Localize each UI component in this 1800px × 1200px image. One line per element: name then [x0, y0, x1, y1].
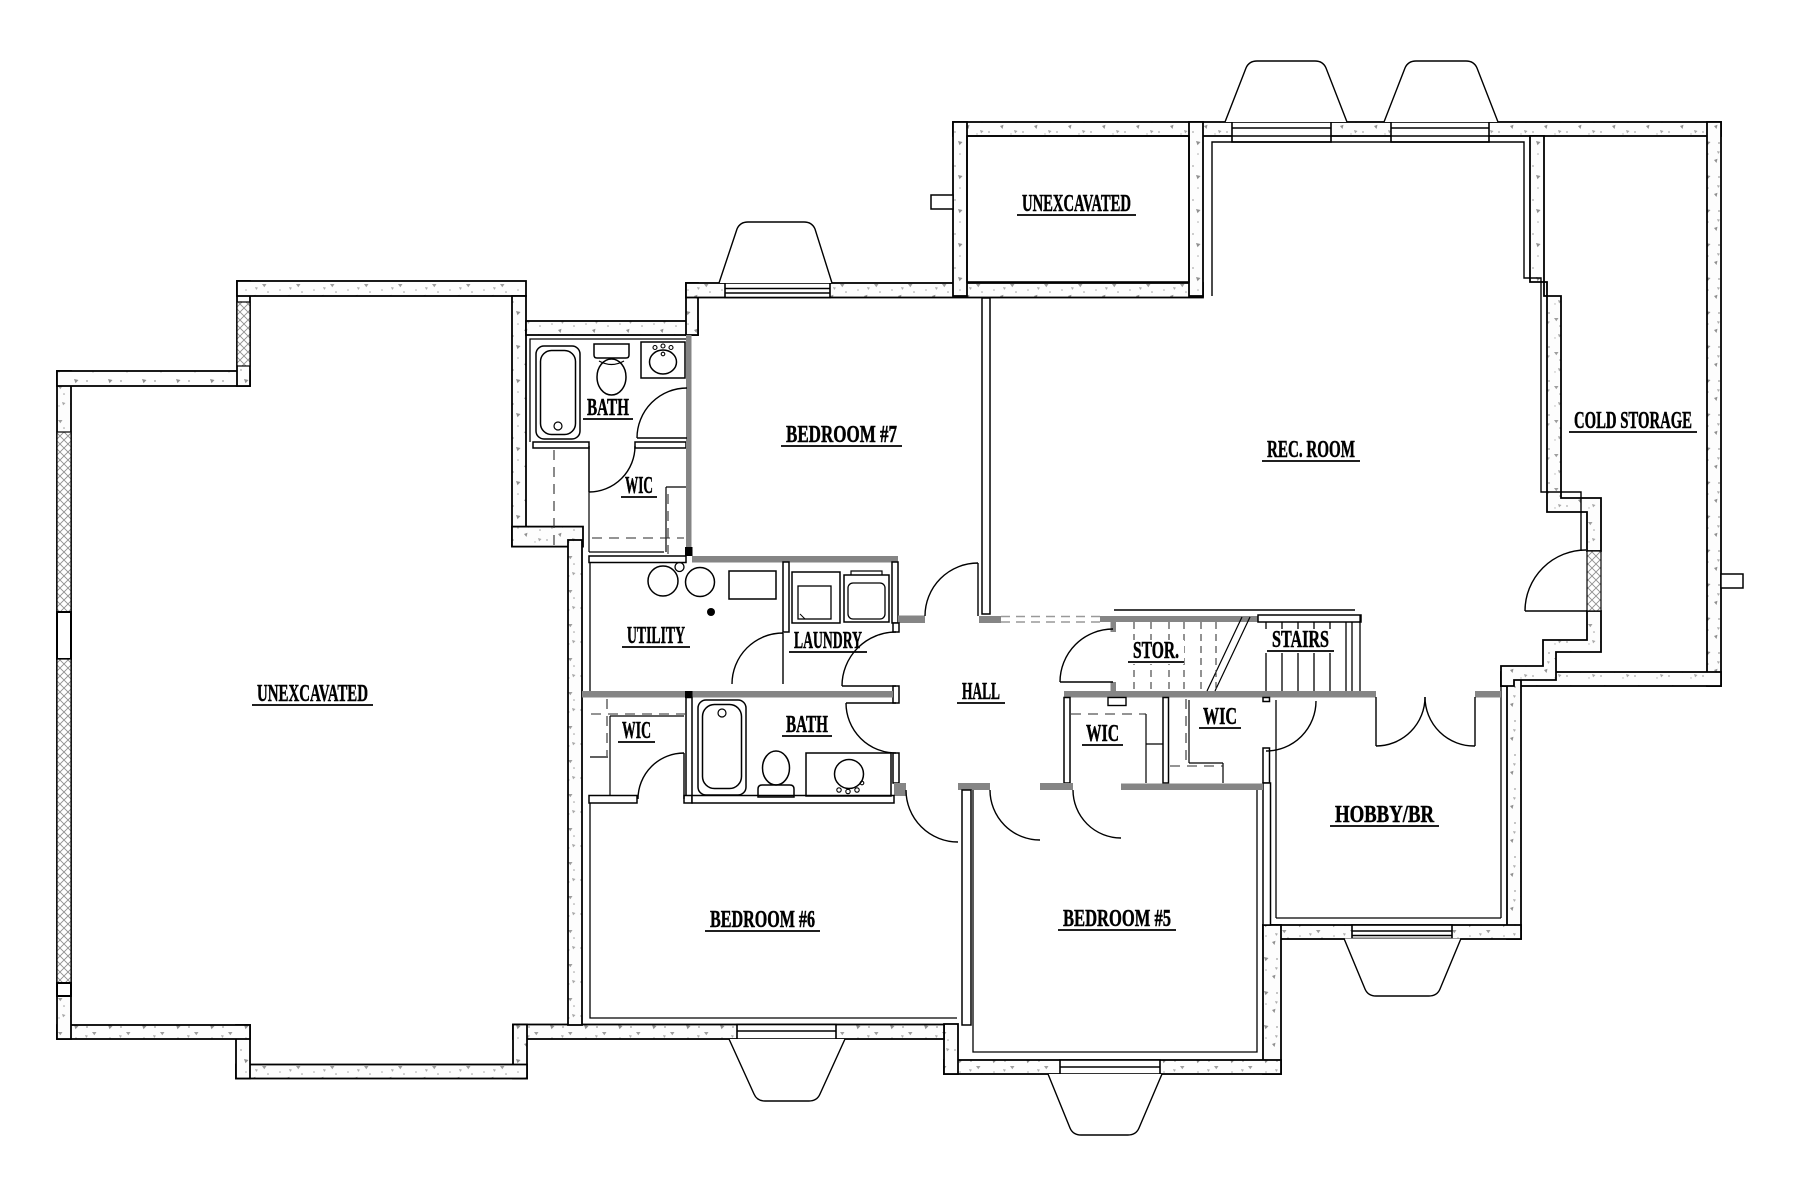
svg-text:BEDROOM #5: BEDROOM #5	[1063, 906, 1171, 932]
svg-text:HALL: HALL	[962, 679, 1000, 705]
svg-text:HOBBY/BR: HOBBY/BR	[1335, 802, 1435, 828]
svg-text:WIC: WIC	[625, 473, 653, 499]
svg-text:UNEXCAVATED: UNEXCAVATED	[1022, 191, 1131, 217]
svg-text:BEDROOM #6: BEDROOM #6	[710, 907, 815, 933]
svg-text:UTILITY: UTILITY	[627, 623, 685, 649]
svg-text:STOR.: STOR.	[1133, 638, 1179, 664]
svg-text:UNEXCAVATED: UNEXCAVATED	[257, 681, 368, 707]
svg-text:BEDROOM #7: BEDROOM #7	[786, 422, 897, 448]
svg-text:WIC: WIC	[622, 718, 651, 744]
svg-text:BATH: BATH	[587, 395, 629, 421]
svg-text:LAUNDRY: LAUNDRY	[794, 628, 862, 654]
svg-text:STAIRS: STAIRS	[1272, 627, 1329, 653]
svg-text:COLD STORAGE: COLD STORAGE	[1574, 408, 1692, 434]
svg-text:BATH: BATH	[786, 712, 828, 738]
svg-text:WIC: WIC	[1086, 721, 1119, 747]
svg-text:REC. ROOM: REC. ROOM	[1267, 437, 1355, 463]
svg-text:WIC: WIC	[1203, 704, 1237, 730]
